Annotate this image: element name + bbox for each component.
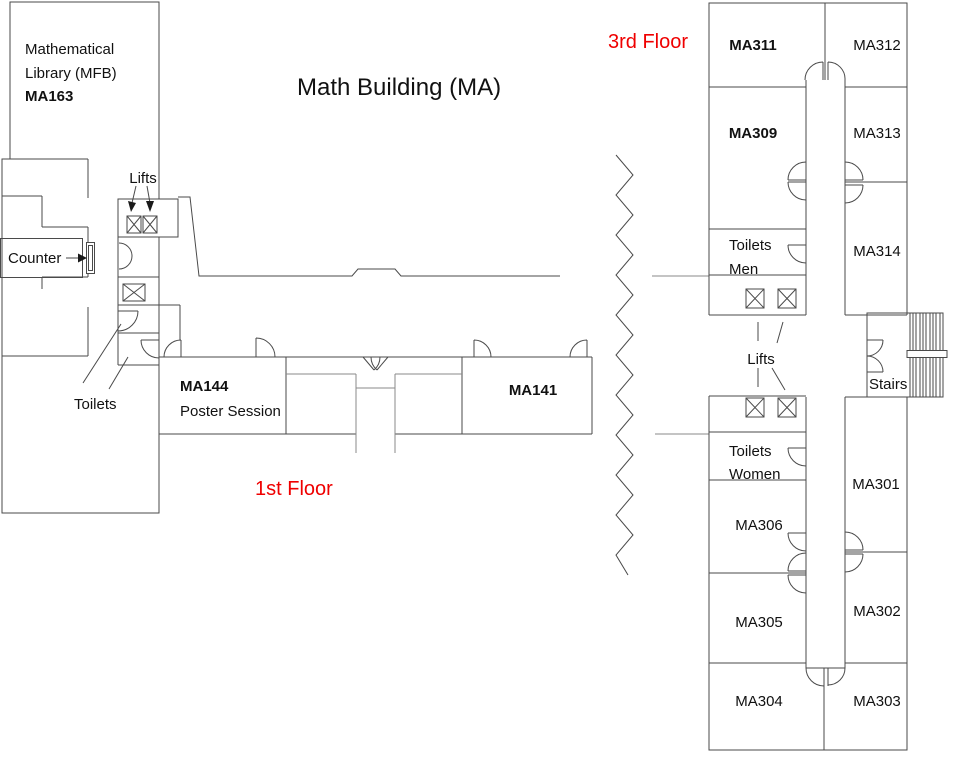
lifts-label-first-floor: Lifts (129, 170, 157, 187)
corridor-connector-lines (652, 276, 709, 434)
room-ma311-label: MA311 (729, 37, 777, 54)
toilets-pointer-lines (83, 324, 128, 389)
lift-icon (123, 216, 157, 301)
floor-plan-page: Math Building (MA) 3rd Floor 1st Floor M… (0, 0, 957, 765)
toilets-label-first-floor: Toilets (74, 396, 117, 413)
first-floor-vestibule-walls (286, 374, 462, 453)
counter-label: Counter (8, 250, 61, 267)
lifts-arrow-left-icon (128, 201, 136, 212)
toilets-men-label-line2: Men (729, 261, 758, 278)
poster-session-label: Poster Session (180, 403, 281, 420)
lifts-arrow-right-icon (146, 201, 154, 212)
counter-desk-outline (87, 243, 95, 274)
room-ma303-label: MA303 (853, 693, 901, 710)
lifts-label-third-floor: Lifts (747, 351, 775, 368)
room-ma309-label: MA309 (729, 125, 777, 142)
room-ma144-label: MA144 (180, 378, 229, 395)
page-title: Math Building (MA) (297, 74, 501, 101)
room-ma313-label: MA313 (853, 125, 901, 142)
room-ma141-label: MA141 (509, 382, 557, 399)
lifts-pointer-lines (132, 186, 150, 203)
library-name-line1: Mathematical (25, 41, 114, 58)
counter-desk-inner (89, 246, 93, 271)
door-arc (118, 243, 587, 370)
stairs-handrail (907, 351, 947, 358)
room-ma314-label: MA314 (853, 243, 901, 260)
floor-plan-canvas: Math Building (MA) 3rd Floor 1st Floor M… (0, 0, 957, 765)
toilets-women-label-line1: Toilets (729, 443, 772, 460)
room-ma312-label: MA312 (853, 37, 901, 54)
door-arc (788, 62, 863, 686)
room-ma305-label: MA305 (735, 614, 783, 631)
door-arc (867, 340, 883, 372)
library-name-line2: Library (MFB) (25, 65, 117, 82)
toilets-women-label-line2: Women (729, 466, 780, 483)
stairs-label: Stairs (869, 376, 907, 393)
room-ma304-label: MA304 (735, 693, 783, 710)
room-ma306-label: MA306 (735, 517, 783, 534)
toilets-men-label-line1: Toilets (729, 237, 772, 254)
room-ma301-label: MA301 (852, 476, 900, 493)
floor-break-zigzag-icon (616, 155, 633, 575)
room-ma302-label: MA302 (853, 603, 901, 620)
third-floor-label: 3rd Floor (608, 31, 688, 53)
third-floor (709, 3, 947, 750)
first-floor-label: 1st Floor (255, 478, 333, 500)
room-ma163-label: MA163 (25, 88, 73, 105)
